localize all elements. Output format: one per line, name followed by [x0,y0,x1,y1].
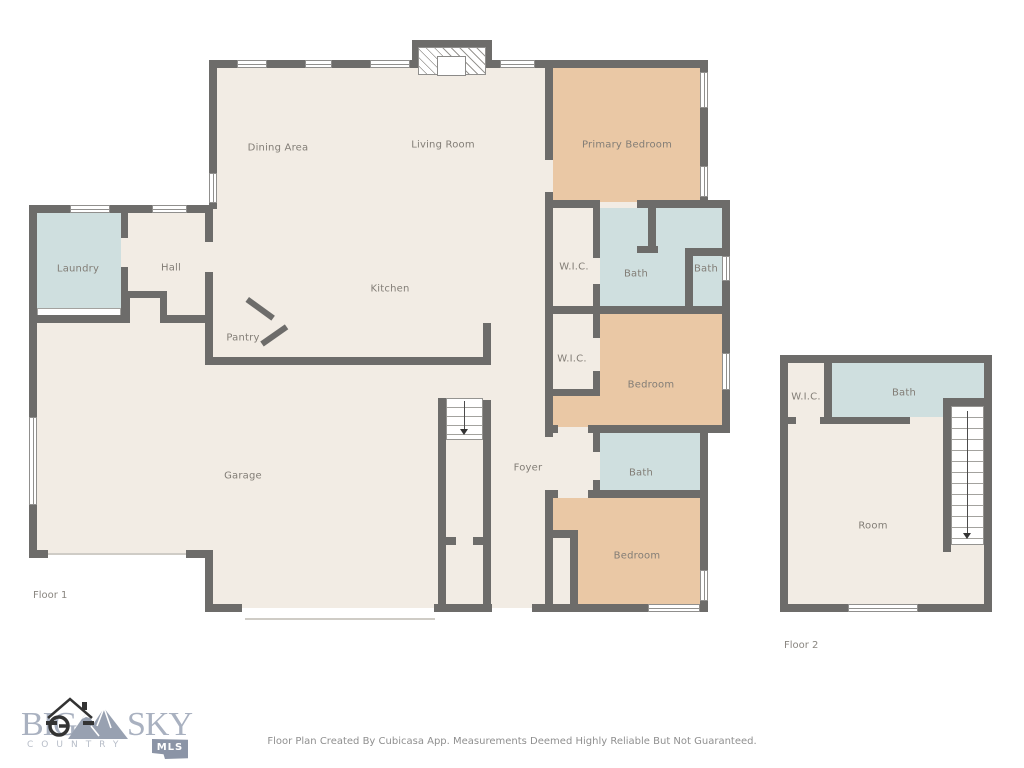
floor2-tag: Floor 2 [784,640,818,651]
wall-bathblock-top-b [637,200,730,208]
stairs-floor2 [951,406,984,545]
wall-bottom-b [532,604,648,612]
window-dining-top [237,60,267,68]
wall-wic1-right-a [593,208,600,258]
wall-laundry-right-a [121,209,128,238]
wall-garage-bl-corner [29,550,48,558]
label-bedroom2: Bedroom [628,380,675,391]
window-laundry-top [70,205,110,213]
label-bath1: Bath [624,269,648,280]
wall-bath-partition-v [648,208,656,250]
label-dining-area: Dining Area [248,143,309,154]
window-bedroom3-bottom [648,604,700,612]
floor2-window-bottom [848,604,918,612]
window-bedroom3-right [700,570,708,601]
wall-bedroom3-top-a [545,490,558,498]
bedroom2-fill [600,314,722,427]
wall-foyer-right-c [545,490,553,612]
wall-bath-partition-h [637,246,658,253]
primary-bath-fill [600,208,722,306]
wall-bedroom2-bottom-b [588,425,730,433]
label-laundry: Laundry [57,264,99,275]
wall-bath2-left [685,250,693,306]
wall-foyer-right-b [545,192,553,437]
window-primary-right-1 [700,72,708,108]
wall-garage-bottom-a [213,604,242,612]
floor2-wall-left [780,355,788,612]
label-wic2: W.I.C. [557,354,586,365]
wall-hall-bottom-a [29,315,123,323]
label-foyer: Foyer [514,463,543,474]
wall-garage-step-v [205,554,213,612]
window-dining-left [209,173,217,203]
wall-bath3-right [700,433,708,498]
floor2-wic-bottom-b [820,417,832,424]
label-floor2-room: Room [858,521,887,532]
wall-bedroom2-bottom-a [545,425,558,433]
wall-stair-shaft-left [438,398,446,604]
wall-bedroom3-closet-v [570,538,578,604]
wall-right-outer-mid [722,200,730,433]
stairs2-direction-line [967,411,968,533]
window-primary-right-2 [700,166,708,197]
window-living-top [370,60,410,68]
floor2-stair-left [943,406,951,552]
stairs1-direction-line [464,401,465,429]
wall-wic2-bottom [549,389,600,396]
wall-bath3-left-b [593,480,600,490]
label-floor2-bath: Bath [892,388,916,399]
fireplace-firebox [437,56,466,76]
primary-bedroom-fill [553,68,700,202]
stairs1-down-arrow [460,429,468,435]
floor2-wic-right [824,363,832,424]
wall-wic1-right-b [593,284,600,306]
floor2-bath-fill-a [832,363,943,417]
window-dining-top2 [305,60,332,68]
bath3-fill [600,433,700,490]
disclaimer-text: Floor Plan Created By Cubicasa App. Meas… [0,736,1024,747]
wall-mid-horizontal [545,306,730,314]
floor2-bath-bottom [832,417,910,424]
stairs-floor1 [446,398,483,440]
label-living-room: Living Room [411,140,475,151]
floor2-wall-top [780,355,992,363]
wall-bedroom3-closet-h [549,530,578,538]
label-kitchen: Kitchen [371,284,410,295]
garage-door-line-left [48,553,186,555]
garage-door-line-bottom [245,618,435,620]
wall-hall-nook-top [123,291,167,298]
bedroom3-closet-fill [553,538,570,604]
label-bedroom3: Bedroom [614,551,661,562]
floor2-wall-bottom-a [780,604,848,612]
wall-bottom-c [700,604,708,612]
label-primary-bedroom: Primary Bedroom [582,140,672,151]
wall-left-outer [29,205,37,558]
label-pantry: Pantry [226,333,259,344]
wall-bathblock-top-a [545,200,600,208]
wall-hall-right-a [205,209,213,242]
floor2-stair-top [943,398,984,406]
wall-wic2-right-a [593,314,600,338]
wall-stair-shaft-right-a [483,323,491,365]
label-bath3: Bath [629,468,653,479]
wall-hall-right-b [205,272,213,363]
window-living-top2 [500,60,535,68]
label-wic1: W.I.C. [559,262,588,273]
wall-foyer-right-a [545,60,553,160]
label-garage: Garage [224,471,262,482]
wall-stair-shaft-right-b [483,400,491,604]
window-bedroom2-right [722,353,730,390]
floor2-bath-fill-b [943,363,984,400]
wall-bottom-a [483,604,492,612]
bedroom2-fill-ext [553,396,600,427]
house-icon [44,693,96,739]
wall-bath3-left-a [593,433,600,452]
wall-understair-stub-b [473,537,491,545]
laundry-room-fill [37,213,121,308]
stairs2-down-arrow [963,533,971,539]
wall-kitchen-bottom [205,357,491,365]
window-hall-top [152,205,187,213]
wall-understair-stub-a [438,537,456,545]
label-bath2: Bath [694,264,718,275]
floor2-wall-bottom-b [918,604,992,612]
window-bath2-right [722,256,730,281]
label-hall: Hall [161,263,181,274]
floor-plan-page: Dining Area Living Room Primary Bedroom … [0,0,1024,768]
floor2-wic-bottom-a [788,417,796,424]
floor1-tag: Floor 1 [33,590,67,601]
label-floor2-wic: W.I.C. [791,392,820,403]
floor2-wall-right [984,355,992,612]
wall-bedroom3-top-b [588,490,708,498]
window-garage-left [29,417,37,505]
